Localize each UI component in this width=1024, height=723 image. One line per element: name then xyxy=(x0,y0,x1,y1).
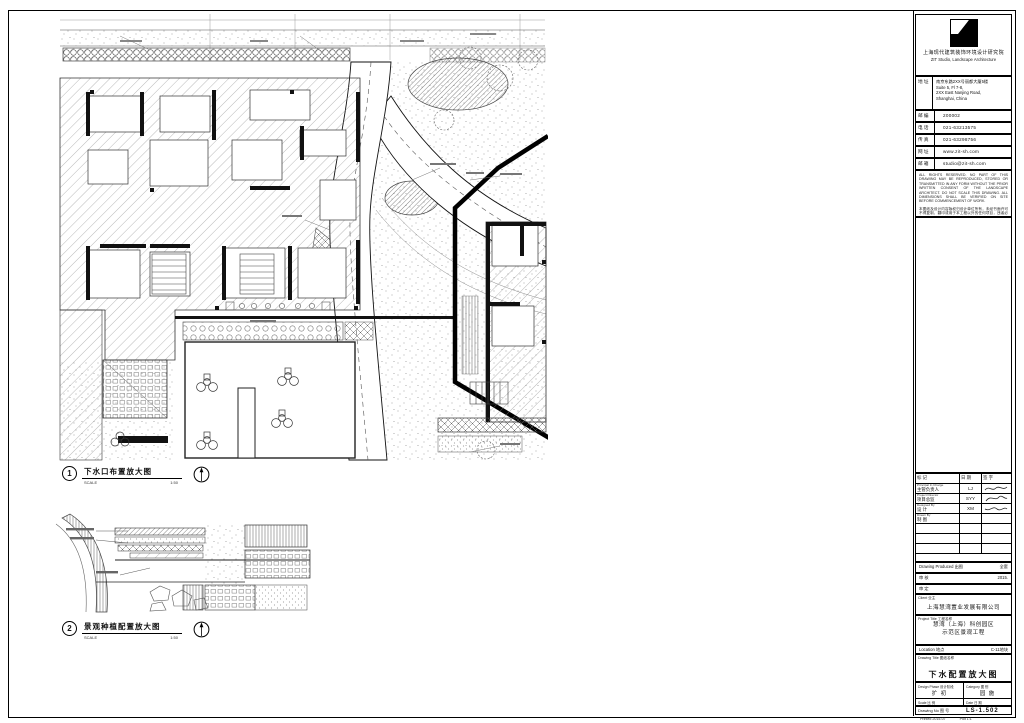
site-plan-drawing xyxy=(0,0,913,723)
info-label: 传 真 xyxy=(916,135,935,145)
plot-footer-left: Printed 2015-07 xyxy=(920,717,946,721)
phase-cell: Design Phase 设计阶段 扩 初 xyxy=(916,683,964,699)
info-label: 邮 箱 xyxy=(916,159,935,169)
north-arrow-icon xyxy=(193,466,210,483)
client-name: 上海慧湾置业发展有限公司 xyxy=(916,603,1011,611)
approve-row: 审 定 xyxy=(915,584,1012,594)
sig-name xyxy=(960,514,982,524)
sig-name: XM xyxy=(960,504,982,514)
notes-box: ALL RIGHTS RESERVED. NO PART OF THIS DRA… xyxy=(915,170,1012,217)
approve-label: 审 定 xyxy=(919,586,929,592)
info-label: 网 址 xyxy=(916,147,935,157)
info-value: www.zit-sh.com xyxy=(935,147,979,157)
detail-2-number-bubble: 2 xyxy=(62,621,77,636)
detail-1-label: 1 下水口布置放大图 SCALE 1:50 xyxy=(62,466,210,485)
info-row-phone: 电 话 021-63213575 xyxy=(915,122,1012,134)
signature xyxy=(982,484,1011,494)
project-box: Project Title 工程名称 慧湾（上海）科创园区 示范区景观工程 xyxy=(915,615,1012,645)
produced-row: Drawing Produced 出图 全套 xyxy=(915,562,1012,573)
drawing-number-row: Drawing No 图 号 LS-1.502 xyxy=(915,706,1012,715)
sig-role: Drawn By制 图 xyxy=(916,514,960,524)
info-label: 邮 编 xyxy=(916,111,935,121)
address-line: Shanghai, China xyxy=(936,96,988,102)
drawing-title: 下水配置放大图 xyxy=(916,669,1011,680)
signature-table: 标 记 日 期 签 字 Principal In Charge主管负责人 LJ … xyxy=(915,473,1012,562)
scale-cell: Scale 比 例 1:150 xyxy=(916,699,964,706)
firm-box: 上海现代建筑装饰环境设计研究院 ZIT Studio, Landscape Ar… xyxy=(915,14,1012,76)
address-box: 地 址 南京东路2XX号丽都大厦5楼 Suite 5, Fl 7-8, 2XX … xyxy=(915,76,1012,110)
detail-2-scale-word: SCALE xyxy=(84,635,97,640)
location-value: C-11地块 xyxy=(991,647,1008,652)
project-title-line: 慧湾（上海）科创园区 xyxy=(916,622,1011,630)
info-value: 021-63213575 xyxy=(935,123,976,133)
location-label: Location 地点 xyxy=(919,647,944,652)
titleblock-divider xyxy=(913,10,914,716)
drawing-sheet: 1 下水口布置放大图 SCALE 1:50 2 景观种植配置放大图 SCALE … xyxy=(0,0,1024,723)
location-row: Location 地点 C-11地块 xyxy=(915,645,1012,654)
drawing-number-value: LS-1.502 xyxy=(962,708,999,714)
address-line: 2XX East Nanjing Road, xyxy=(936,90,988,96)
info-row-web: 网 址 www.zit-sh.com xyxy=(915,146,1012,158)
category-cell: Category 图 别 园 施 xyxy=(964,683,1011,699)
plot-footer-right: Plot 1:1 xyxy=(960,717,972,721)
address-label: 地 址 xyxy=(916,77,933,109)
info-label: 电 话 xyxy=(916,123,935,133)
detail-2-label: 2 景观种植配置放大图 SCALE 1:50 xyxy=(62,621,210,640)
detail-1-scale: 1:50 xyxy=(170,480,178,485)
client-box: Client 业主 上海慧湾置业发展有限公司 xyxy=(915,594,1012,615)
info-row-postcode: 邮 编 200002 xyxy=(915,110,1012,122)
drawing-title-box: Drawing Title 图纸名称 下水配置放大图 xyxy=(915,654,1012,682)
project-title-line: 示范区景观工程 xyxy=(916,630,1011,638)
info-value: 021-63298756 xyxy=(935,135,976,145)
info-row-mail: 邮 箱 studio@zit-sh.com xyxy=(915,158,1012,170)
plot-footer: Printed 2015-07 Plot 1:1 xyxy=(920,717,1012,721)
sig-header-cell: 签 字 xyxy=(982,474,1011,484)
sig-role xyxy=(916,524,960,534)
signature xyxy=(982,504,1011,514)
detail-1-number-bubble: 1 xyxy=(62,466,77,481)
signature xyxy=(982,514,1011,524)
firm-name-cn: 上海现代建筑装饰环境设计研究院 xyxy=(916,49,1011,56)
phase-scale-grid: Design Phase 设计阶段 扩 初 Category 图 别 园 施 S… xyxy=(915,682,1012,706)
signature xyxy=(982,494,1011,504)
detail-2-scale: 1:50 xyxy=(170,635,178,640)
info-row-fax: 传 真 021-63298756 xyxy=(915,134,1012,146)
client-label: Client 业主 xyxy=(916,595,1011,601)
info-value: 200002 xyxy=(935,111,960,121)
detail-1-scale-word: SCALE xyxy=(84,480,97,485)
address-line: 南京东路2XX号丽都大厦5楼 xyxy=(936,79,988,85)
produced-label: Drawing Produced 出图 xyxy=(919,564,963,571)
sig-role xyxy=(916,544,960,554)
north-arrow-icon xyxy=(193,621,210,638)
detail-2-title: 景观种植配置放大图 xyxy=(84,621,176,632)
firm-name-en: ZIT Studio, Landscape Architecture xyxy=(916,57,1011,62)
firm-logo xyxy=(950,19,978,47)
check-label: 审 核 xyxy=(919,575,929,582)
notes-en: ALL RIGHTS RESERVED. NO PART OF THIS DRA… xyxy=(919,173,1008,204)
notes-cn: 本图纸及设计内容版权归设计单位所有，未经书面许可不得复制、翻印或用于本工程以外的… xyxy=(919,207,1008,217)
drawing-number-label: Drawing No 图 号 xyxy=(916,708,962,714)
sig-header-cell: 日 期 xyxy=(960,474,982,484)
drawing-title-label: Drawing Title 图纸名称 xyxy=(916,655,1011,661)
date-cell: Date 日 期 2015.07 xyxy=(964,699,1011,706)
check-row: 审 核 2015. xyxy=(915,573,1012,584)
sig-name: LJ xyxy=(960,484,982,494)
info-value: studio@zit-sh.com xyxy=(935,159,986,169)
sig-name: SYY xyxy=(960,494,982,504)
detail-planting-plan xyxy=(56,514,310,612)
sig-role xyxy=(916,534,960,544)
produced-value: 全套 xyxy=(1000,564,1008,571)
detail-1-title: 下水口布置放大图 xyxy=(84,466,176,477)
check-value: 2015. xyxy=(998,575,1008,582)
empty-box xyxy=(915,217,1012,473)
